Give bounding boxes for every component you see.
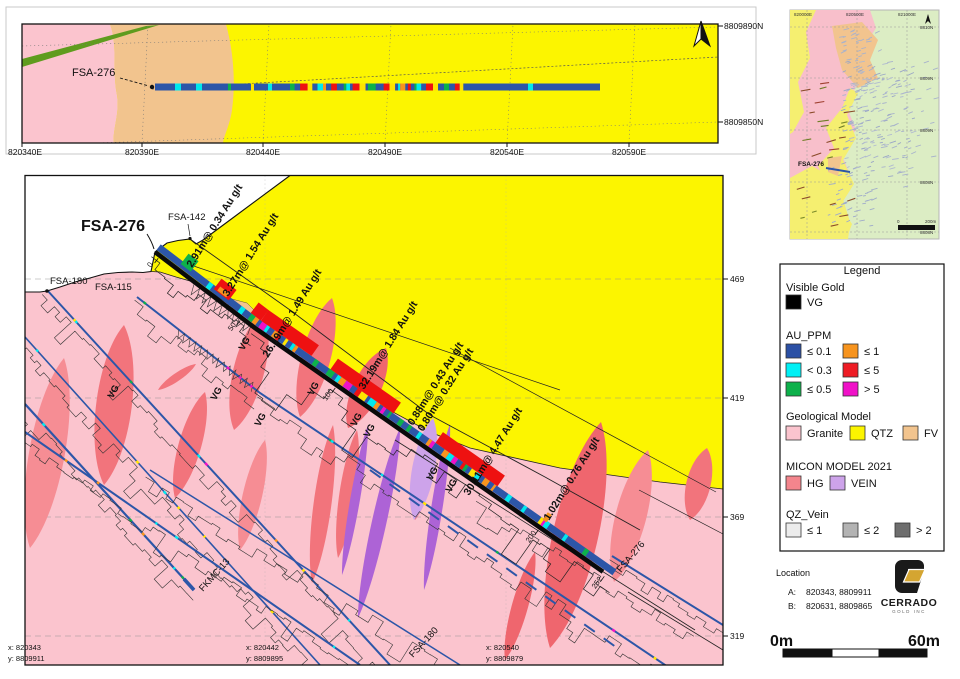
svg-text:8809N: 8809N [920,76,933,81]
svg-text:≤ 1: ≤ 1 [807,525,822,537]
svg-text:FSA-180: FSA-180 [50,276,88,287]
svg-text:HG: HG [807,478,824,490]
svg-text:8810N: 8810N [920,25,933,30]
svg-text:369: 369 [730,512,744,522]
svg-text:820000E: 820000E [794,12,812,17]
svg-text:≤ 0.1: ≤ 0.1 [807,346,831,358]
svg-text:419: 419 [730,393,744,403]
svg-text:≤ 1: ≤ 1 [864,346,879,358]
svg-text:8808N: 8808N [920,230,933,235]
svg-text:≤ 2: ≤ 2 [864,525,879,537]
svg-text:AU_PPM: AU_PPM [786,330,831,342]
svg-text:Visible Gold: Visible Gold [786,282,845,294]
svg-text:x: 820442: x: 820442 [246,643,279,652]
svg-text:60m: 60m [908,633,940,650]
svg-text:FSA-276: FSA-276 [81,218,145,235]
svg-text:820390E: 820390E [125,147,159,157]
svg-text:820590E: 820590E [612,147,646,157]
svg-text:VEIN: VEIN [851,478,877,490]
svg-text:469: 469 [730,274,744,284]
svg-text:Granite: Granite [807,428,843,440]
svg-text:0m: 0m [770,633,793,650]
svg-text:8809890N: 8809890N [724,21,763,31]
svg-text:≤ 5: ≤ 5 [864,365,879,377]
svg-text:820540E: 820540E [490,147,524,157]
svg-text:820490E: 820490E [368,147,402,157]
svg-text:> 2: > 2 [916,525,932,537]
svg-text:820631, 8809865: 820631, 8809865 [806,601,872,611]
svg-text:FV: FV [924,428,939,440]
svg-text:Geological Model: Geological Model [786,411,871,423]
svg-text:FSA-115: FSA-115 [95,282,132,293]
svg-text:x: 820540: x: 820540 [486,643,519,652]
svg-text:MICON MODEL 2021: MICON MODEL 2021 [786,461,892,473]
svg-text:319: 319 [730,631,744,641]
svg-text:y: 8809911: y: 8809911 [8,654,45,663]
svg-text:8808N: 8808N [920,180,933,185]
svg-text:Location: Location [776,568,810,578]
svg-text:≤ 0.5: ≤ 0.5 [807,384,831,396]
svg-text:QZ_Vein: QZ_Vein [786,509,829,521]
svg-text:A:: A: [788,587,796,597]
svg-text:CERRADO: CERRADO [881,597,938,609]
svg-text:8809N: 8809N [920,128,933,133]
svg-text:820340E: 820340E [8,147,42,157]
svg-text:820500E: 820500E [846,12,864,17]
svg-text:y: 8809895: y: 8809895 [246,654,283,663]
svg-text:B:: B: [788,601,796,611]
svg-text:GOLD INC: GOLD INC [892,609,926,614]
svg-text:Legend: Legend [844,265,881,277]
svg-text:y: 8809879: y: 8809879 [486,654,523,663]
svg-text:FSA-142: FSA-142 [168,212,206,223]
svg-text:821000E: 821000E [898,12,916,17]
svg-text:200m: 200m [925,219,937,224]
svg-text:8809850N: 8809850N [724,117,763,127]
svg-text:QTZ: QTZ [871,428,893,440]
svg-text:> 5: > 5 [864,384,880,396]
svg-text:820343, 8809911: 820343, 8809911 [806,587,872,597]
svg-text:820440E: 820440E [246,147,280,157]
svg-text:FSA-276: FSA-276 [72,67,115,79]
svg-text:VG: VG [807,297,823,309]
svg-text:< 0.3: < 0.3 [807,365,832,377]
svg-text:FSA-276: FSA-276 [798,161,824,168]
